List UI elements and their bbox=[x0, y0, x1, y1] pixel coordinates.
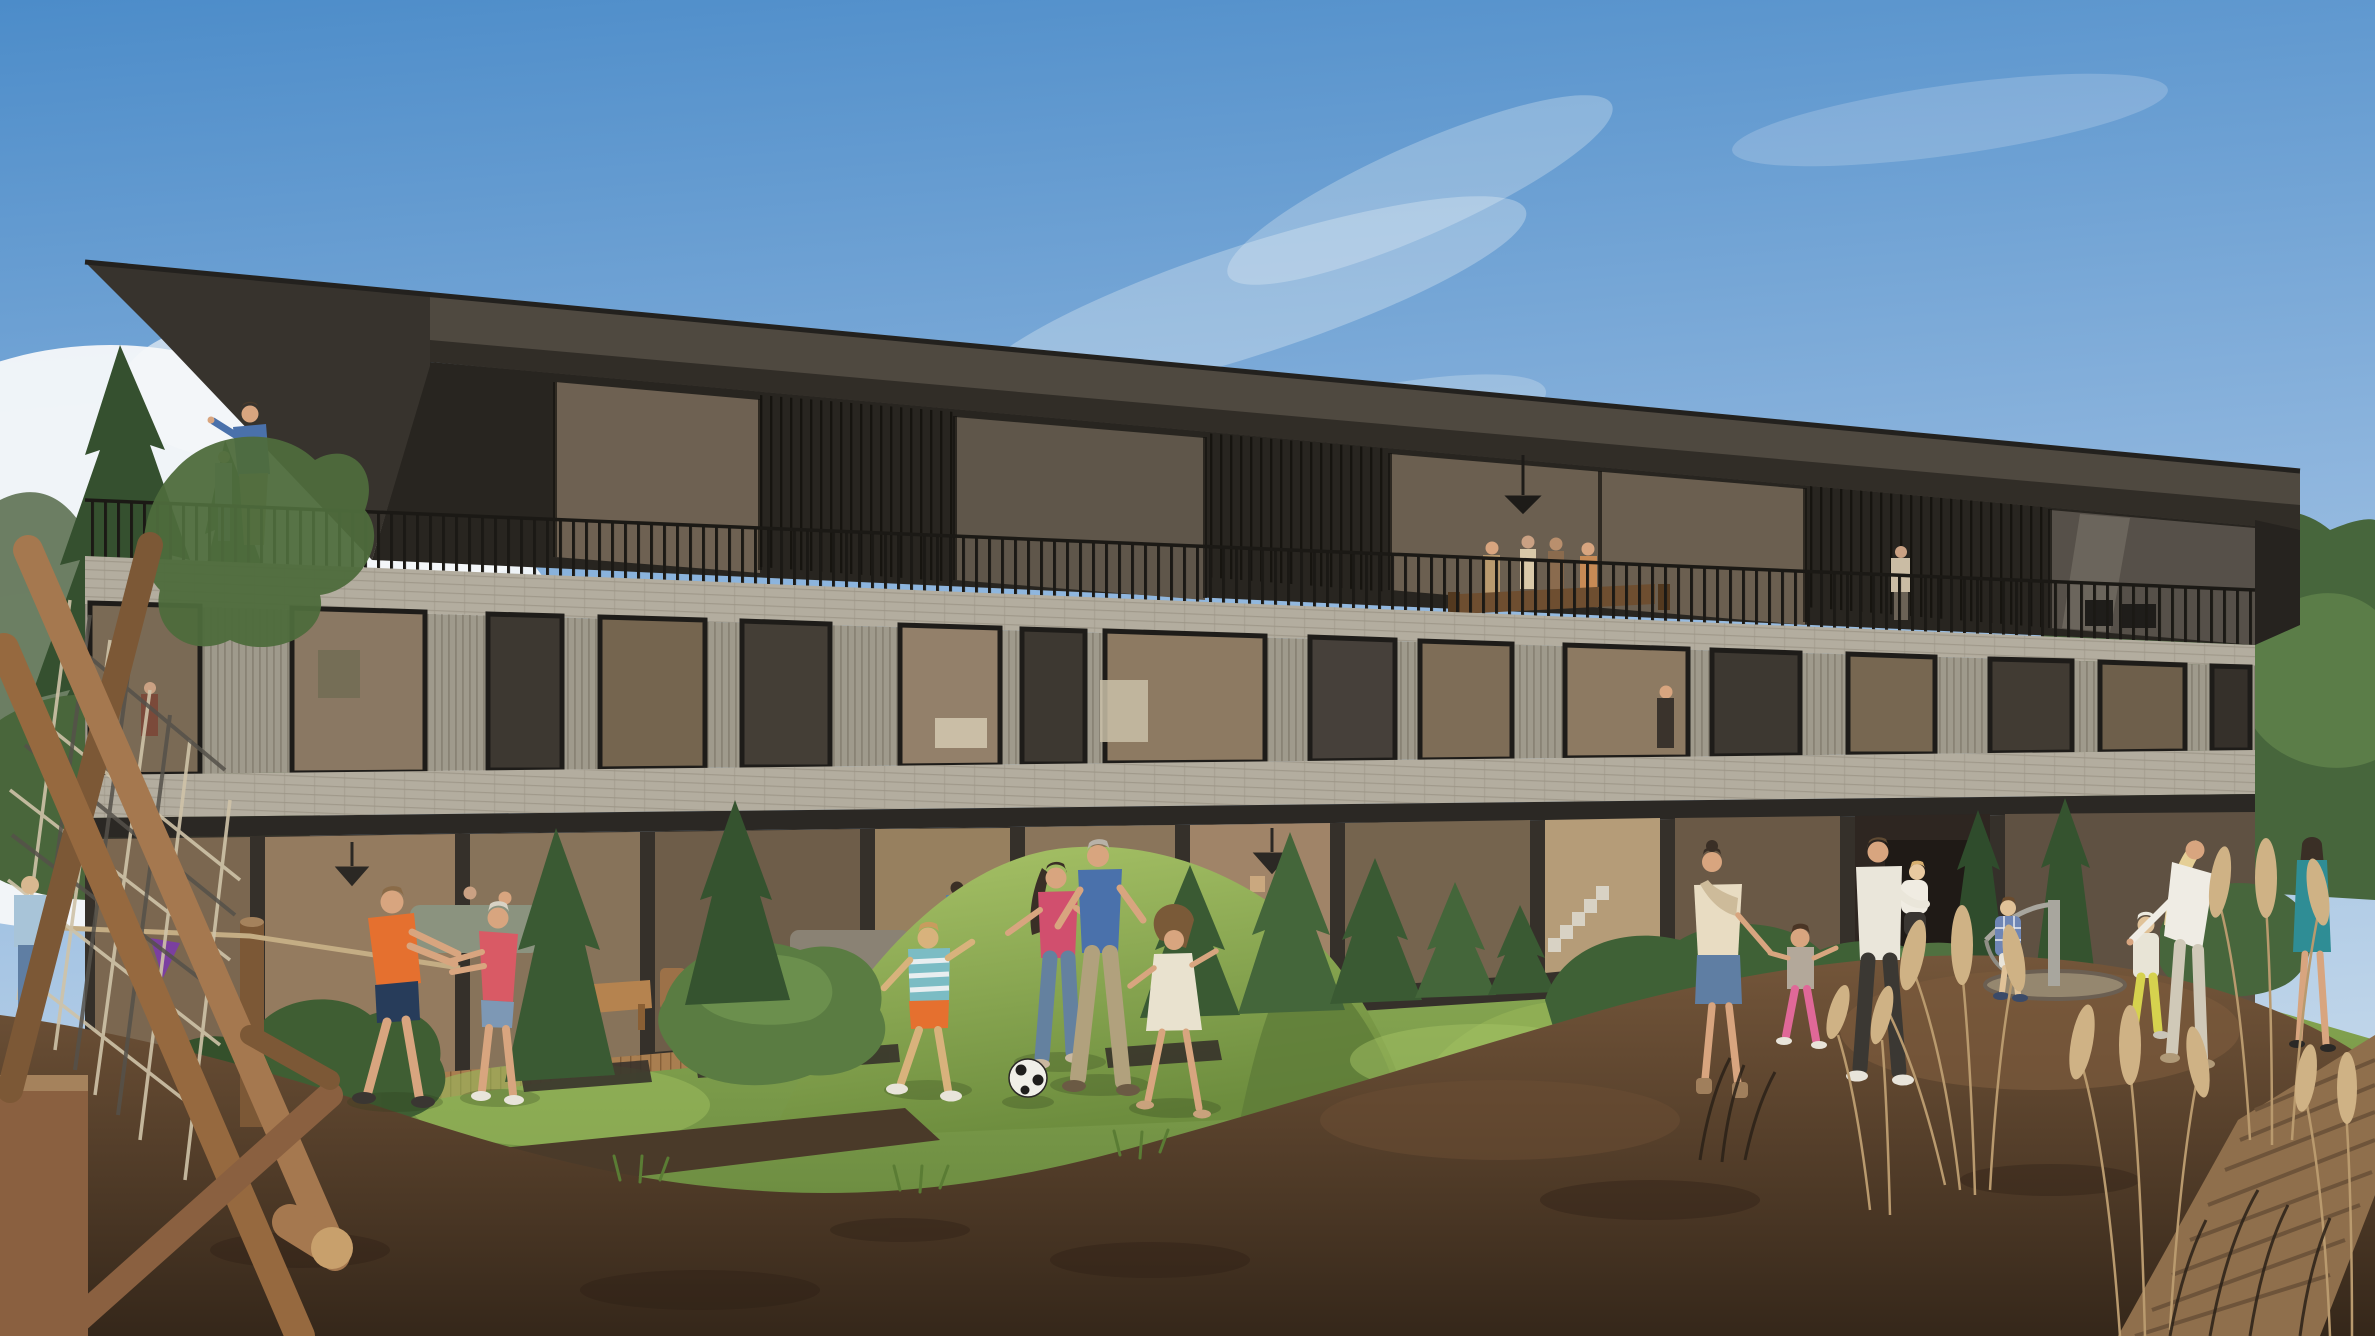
carousel-pole bbox=[2048, 900, 2060, 986]
interior-person-dress bbox=[1657, 698, 1674, 748]
denim-shorts bbox=[481, 1000, 514, 1028]
head bbox=[918, 928, 939, 949]
artwork bbox=[1100, 680, 1148, 742]
ball-patch bbox=[1033, 1075, 1044, 1086]
shoe bbox=[1892, 1075, 1914, 1086]
head bbox=[1087, 845, 1109, 867]
shoe bbox=[2289, 1040, 2305, 1048]
window bbox=[1420, 641, 1512, 760]
torso bbox=[1078, 869, 1122, 953]
hand bbox=[2127, 939, 2134, 946]
log-end-face bbox=[311, 1227, 353, 1269]
window bbox=[488, 614, 562, 770]
shoe bbox=[1116, 1084, 1140, 1096]
head bbox=[1046, 868, 1067, 889]
rope-post-top bbox=[240, 917, 264, 927]
shoe bbox=[411, 1096, 435, 1108]
head bbox=[2000, 900, 2016, 916]
head bbox=[1868, 842, 1889, 863]
interior-person-head bbox=[464, 887, 477, 900]
head bbox=[1791, 929, 1810, 948]
head bbox=[1164, 930, 1184, 950]
head bbox=[1895, 546, 1907, 558]
head bbox=[1582, 543, 1595, 556]
shorts bbox=[375, 981, 420, 1023]
window bbox=[1990, 659, 2072, 753]
shoe bbox=[2153, 1031, 2169, 1039]
shoe bbox=[940, 1091, 962, 1102]
building-right-end-wall bbox=[2255, 520, 2300, 645]
boot bbox=[1696, 1078, 1712, 1094]
head bbox=[1522, 536, 1535, 549]
hand bbox=[208, 417, 215, 424]
shoe bbox=[2160, 1053, 2180, 1063]
architectural-rendering bbox=[0, 0, 2375, 1336]
ball-patch bbox=[1016, 1065, 1027, 1076]
baby-head bbox=[1909, 864, 1925, 880]
head bbox=[1486, 542, 1499, 555]
window bbox=[1022, 629, 1085, 764]
interior-person-head bbox=[1660, 686, 1673, 699]
torso bbox=[368, 913, 421, 989]
head bbox=[1702, 852, 1722, 872]
shorts bbox=[909, 1000, 949, 1029]
head bbox=[488, 908, 509, 929]
window bbox=[1848, 654, 1935, 754]
shoe bbox=[1062, 1080, 1086, 1092]
shoe bbox=[1993, 992, 2009, 1000]
head bbox=[21, 876, 39, 894]
foot bbox=[1136, 1101, 1154, 1110]
shoe bbox=[886, 1084, 908, 1095]
shoe bbox=[2012, 994, 2028, 1002]
desk bbox=[935, 718, 987, 748]
head bbox=[2186, 841, 2205, 860]
table-leg bbox=[638, 1004, 645, 1030]
head bbox=[242, 406, 259, 423]
shoe bbox=[352, 1092, 376, 1104]
artwork bbox=[318, 650, 360, 698]
denim-skirt bbox=[1695, 955, 1742, 1004]
mulch-highlight bbox=[1320, 1080, 1680, 1160]
torso bbox=[1856, 866, 1902, 960]
ball-patch bbox=[1021, 1086, 1030, 1095]
foot bbox=[1193, 1110, 1211, 1119]
rendering-canvas bbox=[0, 0, 2375, 1336]
corner-post bbox=[0, 1075, 88, 1336]
window bbox=[742, 621, 830, 767]
window bbox=[600, 617, 705, 769]
window bbox=[2212, 666, 2250, 750]
shoe bbox=[471, 1091, 491, 1101]
window bbox=[1712, 650, 1800, 756]
shoe bbox=[1776, 1037, 1792, 1045]
shoe bbox=[1811, 1041, 1827, 1049]
window bbox=[2100, 662, 2185, 752]
window bbox=[1310, 637, 1395, 761]
head bbox=[381, 891, 404, 914]
head bbox=[1550, 538, 1563, 551]
torso bbox=[1787, 947, 1814, 989]
shoe bbox=[504, 1095, 524, 1105]
football bbox=[1009, 1059, 1047, 1097]
shoe bbox=[2320, 1044, 2336, 1052]
